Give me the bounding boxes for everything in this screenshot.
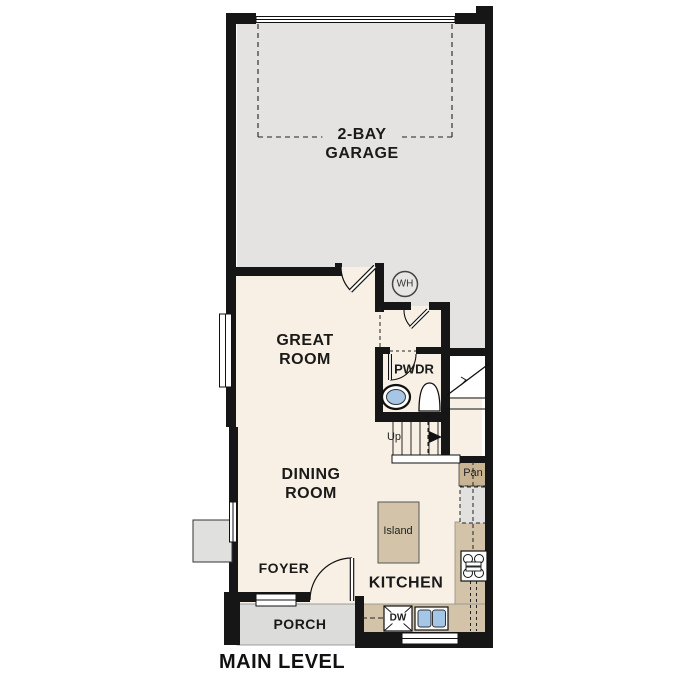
porch-floor xyxy=(237,604,358,645)
stove-control xyxy=(466,567,481,571)
wall-garage-bottom xyxy=(226,267,341,276)
wall xyxy=(416,347,450,354)
wall-stair-top xyxy=(450,348,493,356)
plan-title: MAIN LEVEL xyxy=(219,651,345,674)
water-heater-icon xyxy=(393,272,418,297)
wall-powder-bottom xyxy=(375,412,450,422)
wall xyxy=(375,347,383,422)
sink-basin xyxy=(433,610,446,627)
floor-plan-drawing xyxy=(0,0,687,687)
kitchen-island xyxy=(378,502,419,563)
wall xyxy=(441,302,450,422)
floor-plan: 2-BAY GARAGE GREAT ROOM DINING ROOM PWDR… xyxy=(0,0,687,687)
wall xyxy=(382,302,411,310)
exterior-bump-out xyxy=(193,520,232,562)
wall-porch-left xyxy=(224,592,240,645)
stair-upper-area xyxy=(450,356,487,397)
stair-landing-edge xyxy=(392,455,460,463)
powder-sink-basin xyxy=(387,390,406,405)
stove-control xyxy=(466,562,481,566)
sink-basin xyxy=(418,610,431,627)
